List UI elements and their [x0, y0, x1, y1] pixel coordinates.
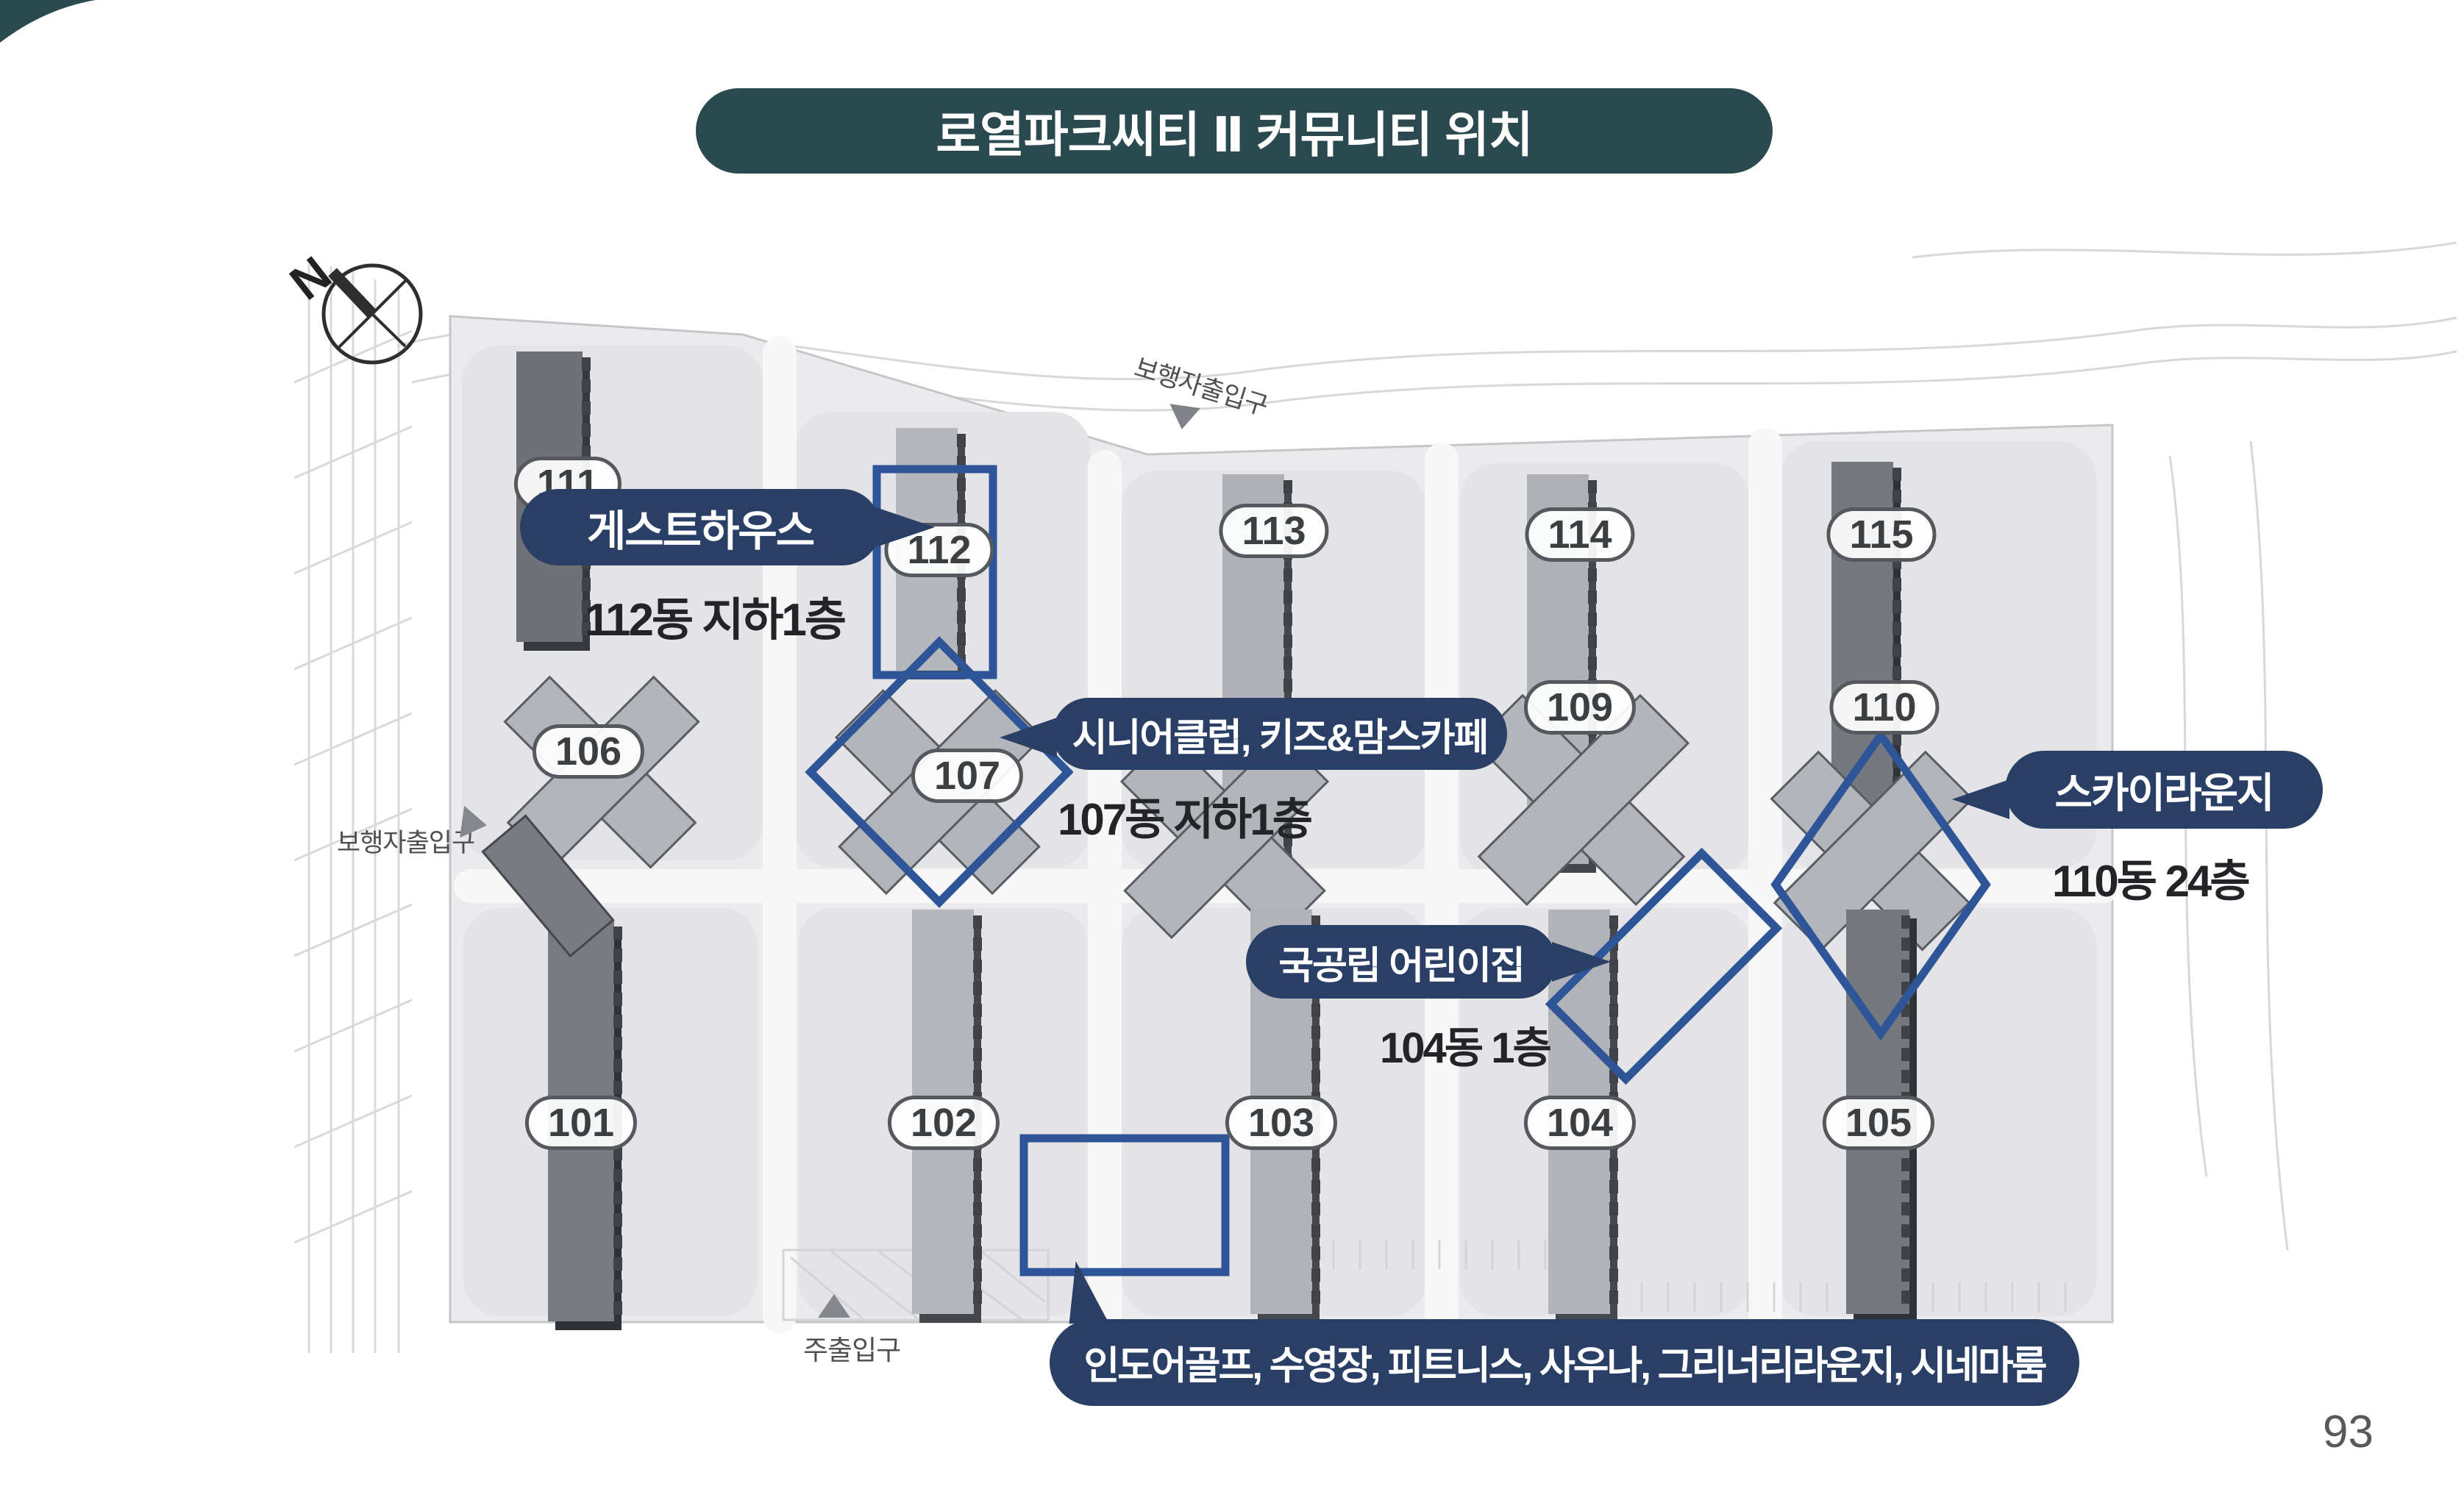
- callout-senior-location: 107동 지하1층: [1058, 784, 1311, 848]
- arrow-down-icon: [1167, 404, 1200, 432]
- callout-daycare: 국공립 어린이집: [1246, 925, 1556, 999]
- callout-senior-kids-cafe: 시니어클럽, 키즈&맘스카페: [1053, 698, 1507, 770]
- callout-guesthouse: 게스트하우스: [520, 489, 880, 565]
- slide: 로열파크씨티 Ⅱ 커뮤니티 위치 N 101 102 103 104 105 1…: [0, 0, 2464, 1489]
- callout-guesthouse-label: 게스트하우스: [587, 496, 813, 558]
- callout-daycare-label: 국공립 어린이집: [1278, 935, 1523, 990]
- callout-daycare-location: 104동 1층: [1380, 1013, 1550, 1075]
- callout-pointer: [1000, 718, 1057, 757]
- title-banner: 로열파크씨티 Ⅱ 커뮤니티 위치: [696, 88, 1773, 174]
- building-badge: 103: [1225, 1096, 1337, 1150]
- building-badge: 115: [1826, 507, 1936, 562]
- callout-clubhouse: 인도어골프, 수영장, 피트니스, 사우나, 그리너리라운지, 시네마룸: [1050, 1319, 2079, 1406]
- building-badge: 104: [1524, 1096, 1636, 1150]
- callout-pointer: [1552, 942, 1611, 982]
- entrance-label-main: 주출입구: [803, 1328, 900, 1368]
- corner-accent-shape: [0, 0, 96, 43]
- callout-guesthouse-location: 112동 지하1층: [585, 582, 844, 649]
- entrance-label-left-pedestrian: 보행자출입구: [337, 822, 474, 860]
- railway-tracks: [294, 265, 412, 1353]
- building-badge: 110: [1829, 680, 1939, 735]
- callout-sky-location: 110동 24층: [2052, 846, 2248, 910]
- page-number: 93: [2323, 1406, 2374, 1458]
- callout-clubhouse-label: 인도어골프, 수영장, 피트니스, 사우나, 그리너리라운지, 시네마룸: [1083, 1335, 2045, 1390]
- building-badge: 114: [1525, 507, 1634, 562]
- page-title: 로열파크씨티 Ⅱ 커뮤니티 위치: [936, 96, 1532, 166]
- building-badge: 106: [533, 724, 644, 779]
- callout-pointer: [1063, 1259, 1107, 1324]
- callout-sky-label: 스카이라운지: [2054, 760, 2273, 820]
- callout-senior-label: 시니어클럽, 키즈&맘스카페: [1072, 707, 1488, 762]
- building-badge: 105: [1823, 1096, 1934, 1150]
- building-badge: 101: [525, 1096, 637, 1150]
- building-badge: 113: [1219, 504, 1328, 558]
- building-badge: 102: [888, 1096, 1000, 1150]
- callout-pointer: [876, 507, 935, 547]
- arrow-right-icon: [460, 806, 489, 841]
- callout-sky-lounge: 스카이라운지: [2005, 751, 2323, 829]
- arrow-up-icon: [818, 1294, 850, 1318]
- building-badge: 109: [1524, 680, 1636, 735]
- callout-pointer: [1952, 779, 2009, 819]
